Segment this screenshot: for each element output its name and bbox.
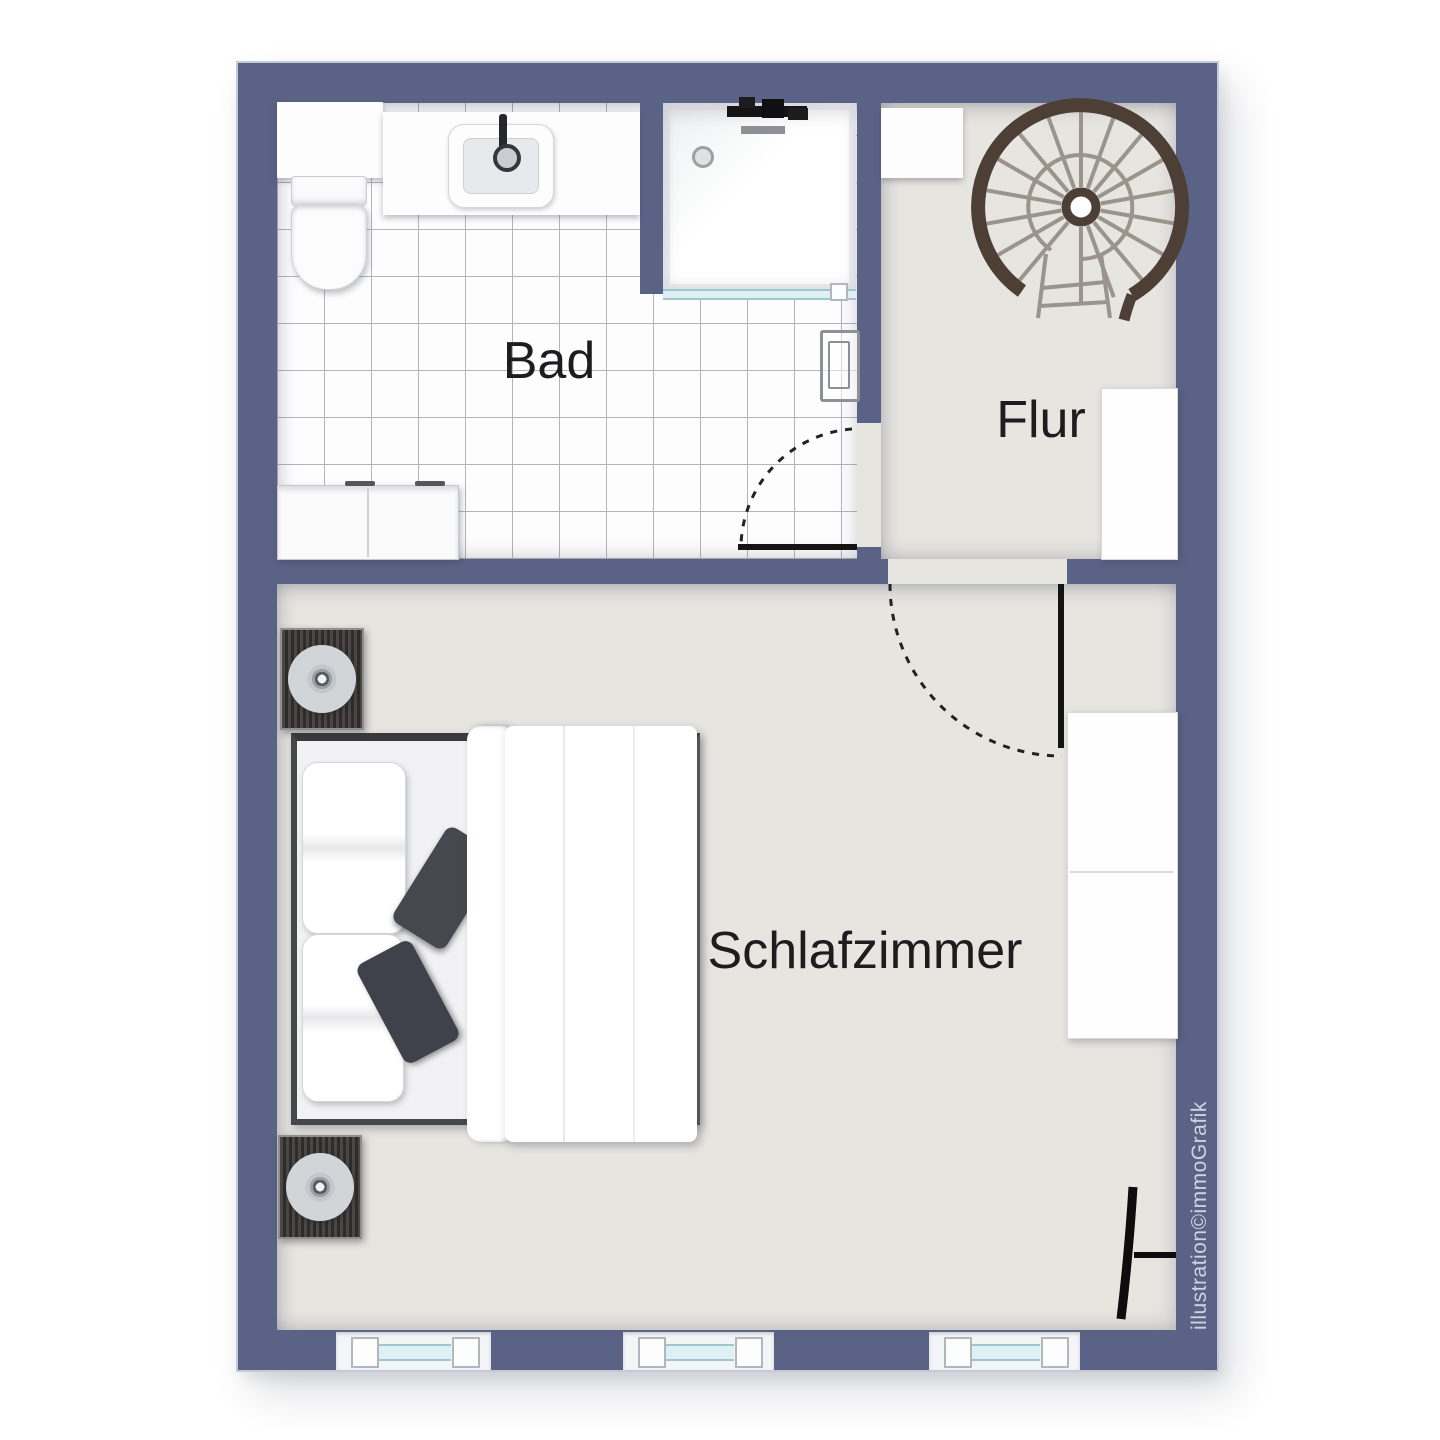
wardrobe-divider bbox=[1070, 871, 1173, 873]
window-1-post-right bbox=[452, 1337, 480, 1368]
window-3-post-left bbox=[944, 1337, 972, 1368]
pillow-white-top bbox=[302, 762, 406, 934]
floorplan-canvas: Bad Flur Schlafzimmer illustration©immoG… bbox=[0, 0, 1440, 1440]
bathroom-cabinet bbox=[277, 485, 459, 560]
speaker-bottom-driver-icon bbox=[286, 1153, 354, 1221]
hall-shelf bbox=[881, 108, 963, 178]
shower-partition-wall bbox=[640, 103, 663, 294]
room-label-bad: Bad bbox=[503, 335, 596, 387]
bathroom-doorway-opening bbox=[857, 423, 881, 547]
window-2-post-right bbox=[735, 1337, 763, 1368]
bathroom-door-leaf bbox=[738, 544, 857, 550]
window-3-post-right bbox=[1041, 1337, 1069, 1368]
bedroom-door-leaf bbox=[1058, 584, 1064, 748]
watermark-credit: illustration©immoGrafik bbox=[1188, 1101, 1212, 1330]
room-label-flur: Flur bbox=[996, 394, 1086, 446]
bathroom-shelf bbox=[277, 102, 383, 178]
shower-head-left bbox=[739, 97, 755, 108]
shower-head-right bbox=[788, 108, 808, 120]
speaker-top bbox=[280, 628, 364, 730]
shower-glass-door bbox=[663, 289, 856, 300]
room-label-schlafzimmer: Schlafzimmer bbox=[708, 925, 1023, 977]
hall-cabinet bbox=[1101, 388, 1178, 560]
window-3-glass bbox=[969, 1344, 1040, 1361]
towel-radiator-inner bbox=[828, 341, 850, 389]
bedroom-doorway-opening bbox=[888, 559, 1067, 584]
window-1-post-left bbox=[351, 1337, 379, 1368]
cabinet-handle-left bbox=[345, 481, 375, 486]
toilet-icon bbox=[291, 204, 367, 290]
wardrobe bbox=[1067, 712, 1178, 1039]
shower-shelf bbox=[741, 126, 785, 134]
towel-radiator bbox=[820, 330, 860, 402]
speaker-top-driver-icon bbox=[288, 645, 356, 713]
shower-head-center bbox=[762, 99, 784, 118]
faucet-head bbox=[493, 144, 521, 172]
cabinet-divider bbox=[367, 488, 369, 557]
window-1-glass bbox=[376, 1344, 451, 1361]
shower-door-handle bbox=[830, 283, 848, 301]
cabinet-handle-right bbox=[415, 481, 445, 486]
duvet bbox=[505, 726, 697, 1142]
speaker-bottom bbox=[278, 1135, 362, 1239]
window-2-glass bbox=[663, 1344, 734, 1361]
toilet-tank bbox=[291, 176, 367, 206]
window-2-post-left bbox=[638, 1337, 666, 1368]
shower-drain bbox=[692, 146, 714, 168]
